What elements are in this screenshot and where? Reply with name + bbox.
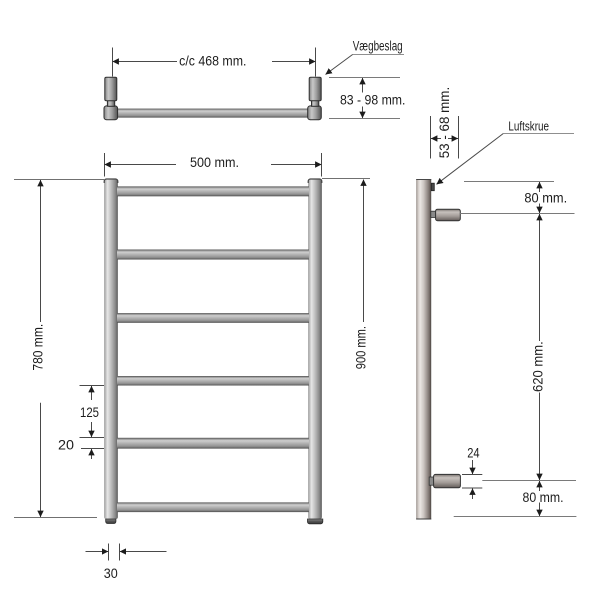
svg-text:125: 125 xyxy=(80,405,99,420)
svg-text:80 mm.: 80 mm. xyxy=(524,190,567,206)
svg-text:53 - 68 mm.: 53 - 68 mm. xyxy=(437,87,452,159)
svg-text:780 mm.: 780 mm. xyxy=(31,324,46,371)
svg-text:900 mm.: 900 mm. xyxy=(353,326,368,369)
svg-text:500 mm.: 500 mm. xyxy=(190,154,239,170)
svg-text:80 mm.: 80 mm. xyxy=(523,489,564,505)
svg-text:Luftskrue: Luftskrue xyxy=(508,118,549,133)
svg-text:30: 30 xyxy=(104,566,118,581)
svg-text:24: 24 xyxy=(467,445,480,460)
svg-text:83 - 98 mm.: 83 - 98 mm. xyxy=(340,91,406,107)
svg-text:620 mm.: 620 mm. xyxy=(531,341,546,392)
svg-text:20: 20 xyxy=(58,438,74,453)
svg-text:Vægbeslag: Vægbeslag xyxy=(353,38,403,53)
svg-text:c/c 468 mm.: c/c 468 mm. xyxy=(179,53,246,68)
